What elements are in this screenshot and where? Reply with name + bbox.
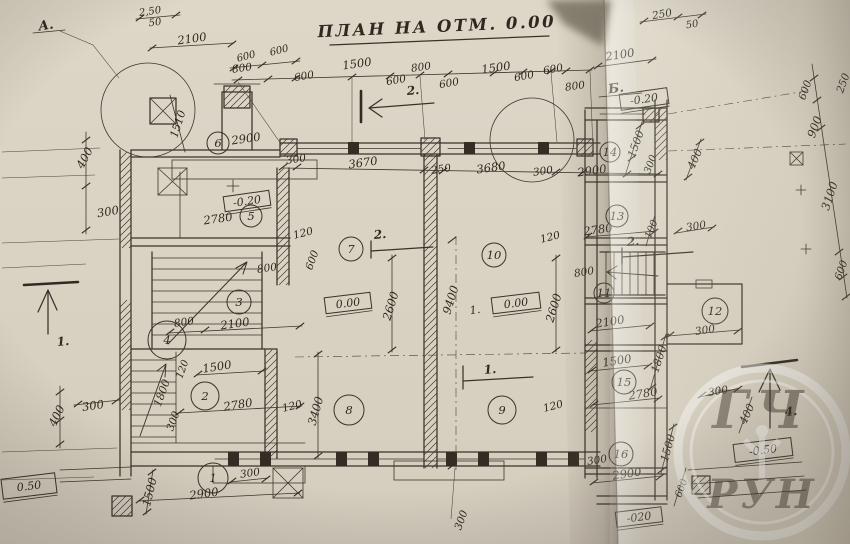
vignette-overlay — [0, 0, 850, 544]
floor-plan-drawing: ПЛАН НА ОТМ. 0.00 — [0, 0, 850, 544]
blueprint-photo: ПЛАН НА ОТМ. 0.00 — [0, 0, 850, 544]
